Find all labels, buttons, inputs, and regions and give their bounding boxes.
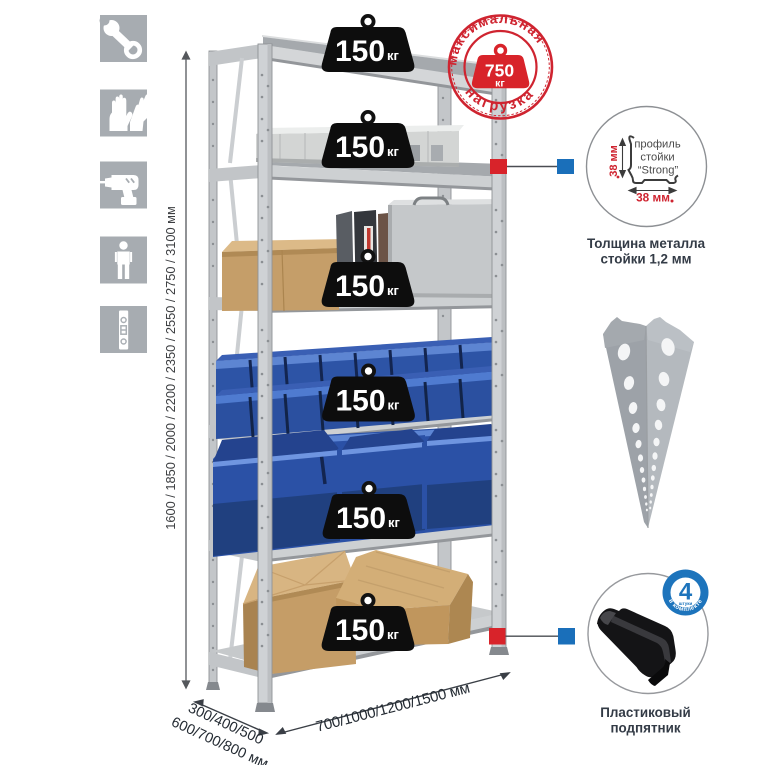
- svg-text:“Strong”: “Strong”: [638, 165, 679, 177]
- svg-text:стойки 1,2 мм: стойки 1,2 мм: [600, 252, 691, 267]
- svg-text:кг: кг: [387, 48, 400, 63]
- svg-text:кг: кг: [388, 515, 401, 530]
- svg-text:кг: кг: [388, 398, 401, 413]
- svg-text:профиль: профиль: [634, 139, 680, 151]
- svg-text:подпятник: подпятник: [610, 721, 680, 736]
- svg-text:150: 150: [335, 131, 385, 164]
- svg-text:38 мм: 38 мм: [636, 191, 670, 205]
- svg-text:150: 150: [335, 270, 385, 303]
- svg-text:38 мм: 38 мм: [608, 145, 620, 177]
- svg-text:150: 150: [335, 35, 385, 68]
- svg-text:150: 150: [335, 614, 385, 647]
- svg-text:150: 150: [336, 502, 386, 535]
- svg-text:Пластиковый: Пластиковый: [600, 705, 690, 720]
- svg-text:700/1000/1200/1500 мм: 700/1000/1200/1500 мм: [314, 680, 471, 736]
- svg-text:кг: кг: [387, 144, 400, 159]
- svg-text:стойки: стойки: [640, 152, 674, 164]
- svg-text:штуки: штуки: [679, 601, 693, 606]
- svg-text:1600 / 1850 / 2000 / 2200 / 23: 1600 / 1850 / 2000 / 2200 / 2350 / 2550 …: [163, 206, 178, 530]
- svg-text:кг: кг: [387, 627, 400, 642]
- svg-text:кг: кг: [495, 78, 505, 90]
- svg-text:кг: кг: [387, 283, 400, 298]
- svg-text:150: 150: [335, 385, 385, 418]
- svg-text:Толщина металла: Толщина металла: [587, 236, 706, 251]
